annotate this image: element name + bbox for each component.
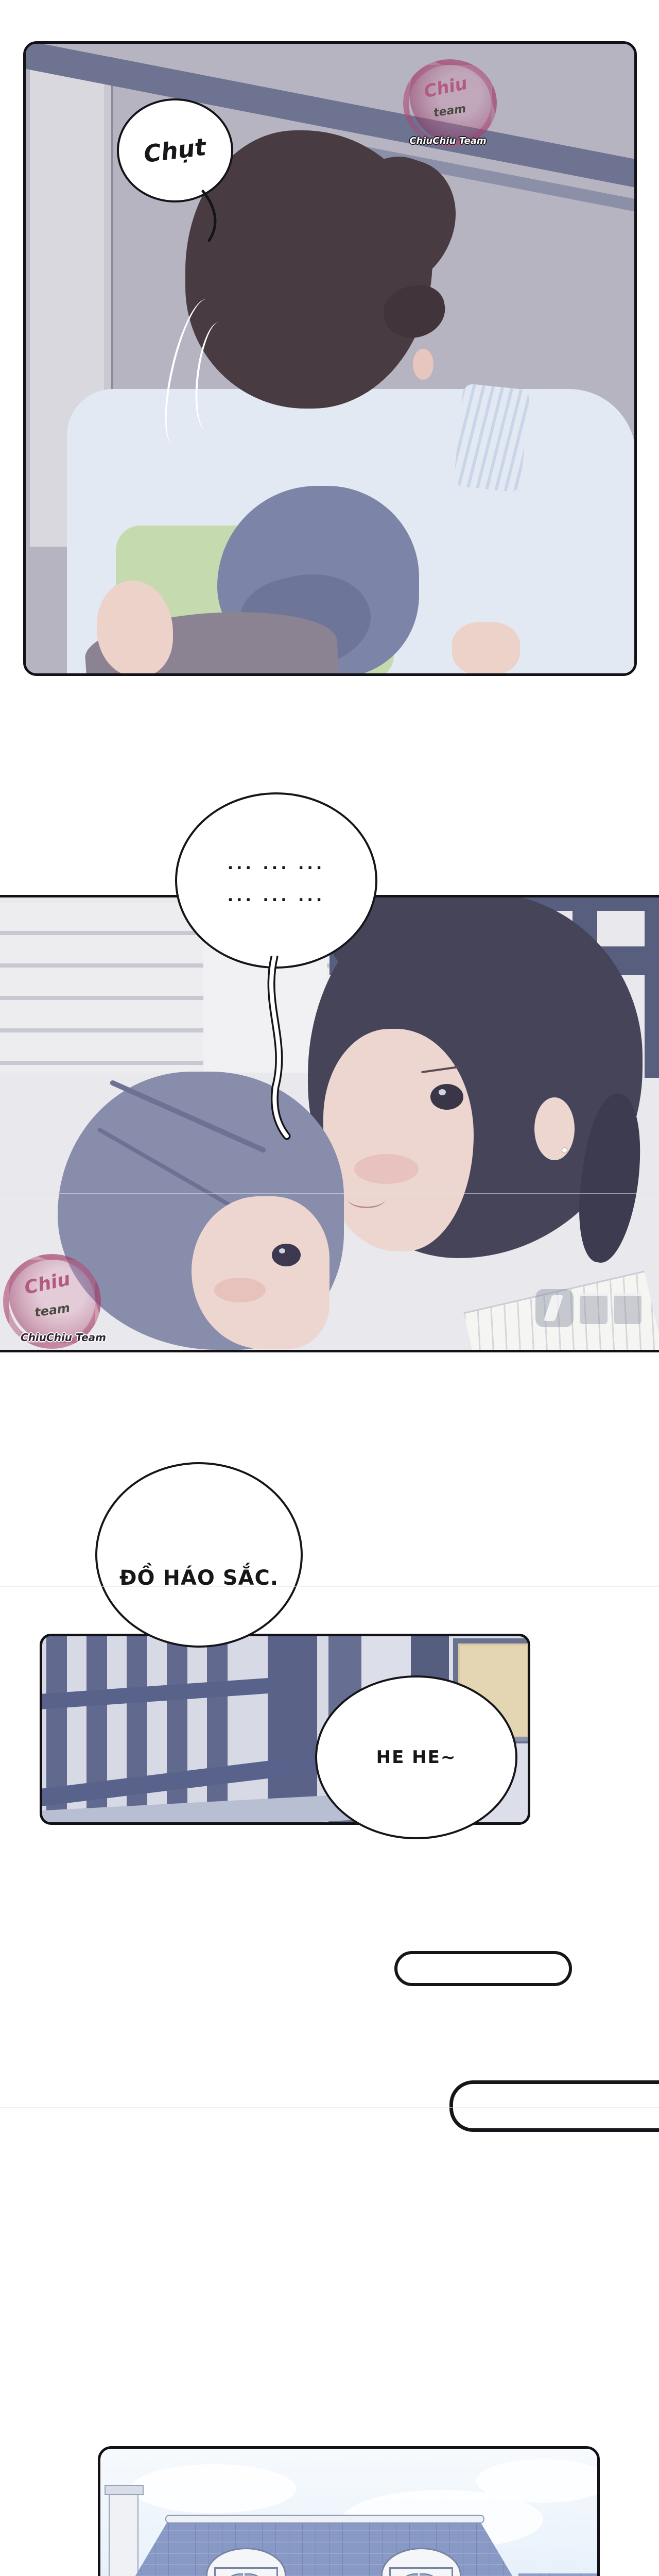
char-right-ear [534,1097,575,1160]
char-right-blush [354,1154,419,1184]
gate-bar [167,1636,187,1822]
panel-bedroom-kiss: Chụt Chiu team ChiuChiu Team [23,41,637,676]
secondary-roof [518,2573,597,2576]
chiuchiu-team-label: ChiuChiu Team [4,1331,123,1344]
roof-ridge-cap [165,2515,484,2523]
chiuchiu-team-label: ChiuChiu Team [386,135,510,146]
hand-gripping-shirt [452,622,520,675]
silence-text-line1: ... ... ... [228,849,325,880]
sfx-kiss-text: Chụt [143,133,208,168]
chiuchiu-logo-icon: Chiu team [403,59,497,147]
laugh-text: HE HE~ [376,1747,457,1768]
image-seam [0,2107,659,2108]
webtoon-page: Chụt Chiu team ChiuChiu Team ... ... ...… [0,0,659,2576]
empty-pill-bubble [394,1951,572,1986]
char-right-eye [430,1084,463,1110]
window-frame-bar [645,897,659,1078]
logo-script-top: Chiu [422,73,469,102]
sfx-bubble-tail [196,188,232,245]
chimney [109,2489,138,2576]
chimney-cap [105,2485,144,2495]
image-seam [0,1193,659,1194]
gate-rail [40,1677,276,1709]
speech-bubble-laugh: HE HE~ [315,1675,517,1839]
man-shirt-collar-stripes [453,383,530,493]
logo-script-top: Chiu [23,1268,73,1299]
char-left-face [192,1196,329,1349]
logo-script-bottom: team [34,1301,71,1320]
speech-bubble-insult: ĐỒ HÁO SẮC. [95,1462,303,1648]
cloud [131,2464,296,2513]
silence-text-line2: ... ... ... [228,880,325,912]
silence-bubble-tail [255,956,301,1141]
dormer-window [206,2548,283,2576]
char-left-eye [272,1244,301,1266]
earring-dot [562,1148,567,1153]
dormer-window [381,2548,458,2576]
gate-bar [207,1636,228,1822]
image-seam [0,1586,659,1587]
logo-script-bottom: team [433,103,467,120]
man-ear [413,349,433,380]
sfx-bubble-kiss: Chụt [117,98,233,202]
panel-mansion-roof [98,2446,600,2576]
speech-bubble-silence: ... ... ... ... ... ... [175,792,377,969]
mansard-roof [115,2519,533,2576]
char-right-face [323,1029,474,1251]
char-left-blush [214,1278,266,1302]
empty-pill-bubble-clipped [449,2080,659,2132]
gate-column-wide [268,1636,317,1822]
panel-face-closeup: Chiu team ChiuChiu Team [0,895,659,1352]
